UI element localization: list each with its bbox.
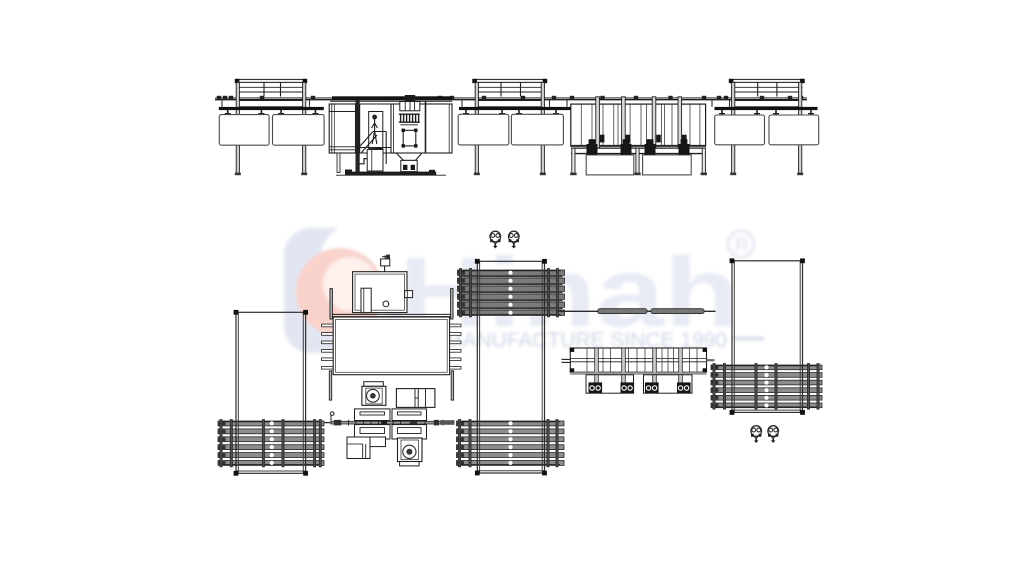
svg-text:R: R bbox=[735, 235, 749, 256]
